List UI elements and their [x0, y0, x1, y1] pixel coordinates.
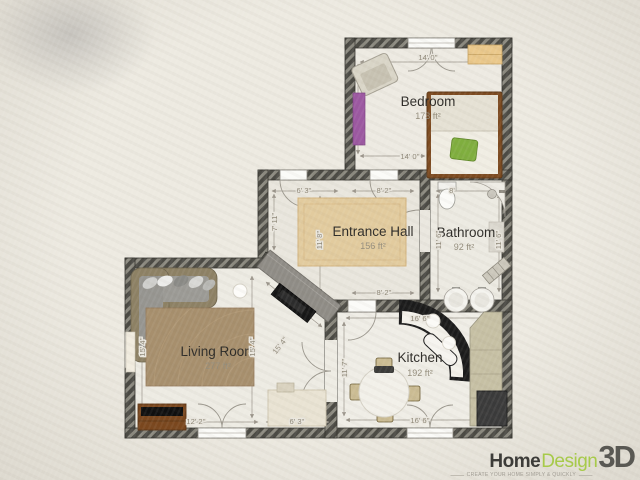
floorplan-drawing: Bedroom 173 ft² Entrance Hall 156 ft² Ba… [0, 0, 640, 480]
hall-label: Entrance Hall [332, 224, 413, 239]
bathroom-area: 92 ft² [454, 242, 475, 252]
ceiling-light[interactable] [233, 284, 247, 298]
dim-label: 16' 6'' [410, 314, 430, 323]
dim-label: 8' [449, 186, 455, 195]
dim-label: 16' 6'' [410, 416, 430, 425]
dim-label: 6' 3'' [290, 417, 305, 426]
bedroom-dresser[interactable] [468, 45, 502, 64]
dim-label: 6' 3'' [297, 186, 312, 195]
dim-label: 12' 2'' [186, 417, 206, 426]
wall-hall-left[interactable] [258, 170, 268, 260]
logo-home: Home [489, 452, 540, 471]
living-label: Living Room [180, 344, 255, 359]
tagline-line [451, 475, 465, 476]
dim-label: 11' 6'' [494, 230, 503, 249]
ceiling-light[interactable] [443, 337, 456, 350]
kitchen-area: 192 ft² [407, 368, 433, 378]
bathroom-label: Bathroom [437, 225, 496, 240]
kitchen-label: Kitchen [397, 350, 442, 365]
living-radiator[interactable] [126, 332, 135, 372]
living-area: 277 ft² [205, 361, 231, 371]
tagline-line [579, 475, 593, 476]
floorplan-canvas: Bedroom 173 ft² Entrance Hall 156 ft² Ba… [0, 0, 640, 480]
logo-tagline: CREATE YOUR HOME SIMPLY & QUICKLY [448, 472, 595, 477]
dim-label: 8' 2'' [377, 186, 392, 195]
bedroom-area: 173 ft² [415, 111, 441, 121]
homedesign3d-logo: HomeDesign3D CREATE YOUR HOME SIMPLY & Q… [435, 445, 634, 478]
tagline-text: CREATE YOUR HOME SIMPLY & QUICKLY [467, 472, 576, 477]
dim-label: 11' 8'' [315, 230, 324, 249]
logo-3d: 3D [598, 445, 634, 470]
bedroom-purple-runner[interactable] [353, 93, 365, 145]
logo-design: Design [541, 452, 597, 471]
living-tv-stand[interactable] [138, 404, 186, 430]
dim-label: 7' 11'' [270, 212, 279, 231]
dim-label: 11' 7'' [340, 358, 349, 377]
dim-label: 15' 4'' [248, 337, 257, 357]
wall-living-top[interactable] [125, 258, 265, 268]
hall-area: 156 ft² [360, 241, 386, 251]
dim-label: 14' 0'' [400, 152, 420, 161]
kitchen-fridge[interactable] [477, 391, 507, 426]
dim-label: 15' 4'' [138, 337, 147, 357]
dim-label: 11' 6'' [434, 230, 443, 249]
dim-label: 8' 2'' [377, 288, 392, 297]
dim-label: 14' 0'' [418, 53, 438, 62]
bedroom-label: Bedroom [401, 94, 456, 109]
